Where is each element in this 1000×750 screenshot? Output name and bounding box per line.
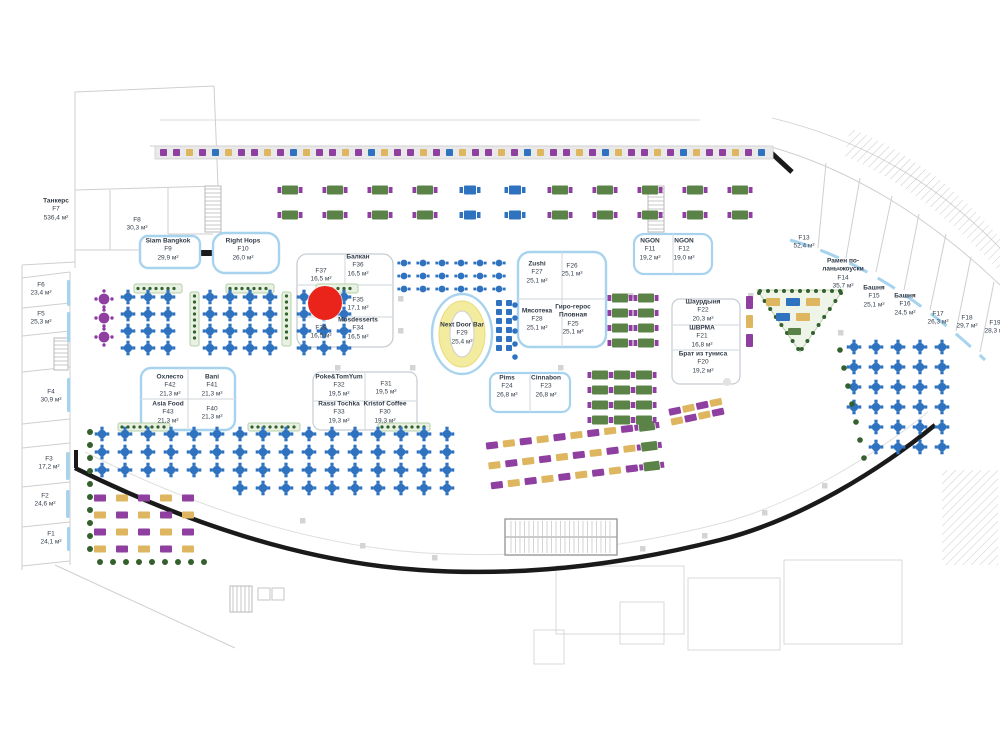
decor-shape (446, 275, 449, 278)
decor-shape (465, 288, 468, 291)
decor-shape (187, 450, 190, 453)
decor-shape (427, 288, 430, 291)
decor-shape (451, 486, 454, 489)
decor-shape (569, 187, 573, 193)
decor-shape (215, 456, 218, 459)
decor-shape (193, 324, 196, 327)
decor-shape (440, 450, 443, 453)
decor-shape (684, 413, 697, 422)
stall-label-F15[interactable]: БашняF1525,1 м² (863, 285, 884, 310)
decor-shape (198, 450, 201, 453)
stall-label-F7[interactable]: ТанкерсF7536,4 м² (43, 198, 69, 223)
stall-label-F37[interactable]: F3716,5 м² (310, 268, 331, 285)
stall-name: Next Door Bar (440, 322, 484, 330)
decor-shape (749, 187, 753, 193)
location-marker[interactable] (308, 286, 342, 320)
stall-label-F16[interactable]: БашняF1624,5 м² (894, 293, 915, 318)
decor-shape (116, 495, 128, 502)
decor-shape (507, 479, 520, 487)
stall-label-F35[interactable]: F3517,1 м² (347, 297, 368, 314)
stall-label-F13[interactable]: F1352,4 м² (793, 235, 814, 252)
decor-shape (348, 346, 351, 349)
decor-shape (443, 430, 452, 439)
decor-shape (548, 212, 552, 218)
decor-shape (292, 425, 295, 428)
decor-shape (433, 149, 440, 156)
decor-shape (852, 340, 855, 343)
decor-shape (162, 425, 165, 428)
decor-shape (87, 468, 93, 474)
decor-shape (99, 332, 110, 343)
decor-shape (537, 149, 544, 156)
decor-shape (588, 417, 592, 423)
decor-shape (439, 273, 446, 280)
decor-shape (399, 481, 402, 484)
decor-shape (279, 486, 282, 489)
decor-shape (757, 291, 761, 295)
stall-label-F40[interactable]: F4021,3 м² (201, 406, 222, 423)
decor-shape (918, 400, 921, 403)
decor-shape (420, 260, 427, 267)
decor-shape (254, 312, 257, 315)
decor-shape (509, 186, 521, 195)
decor-shape (129, 468, 132, 471)
decor-shape (874, 411, 877, 414)
decor-shape (55, 565, 235, 648)
stall-code: F7 (43, 206, 69, 214)
decor-shape (351, 466, 360, 475)
stall-label-F9[interactable]: Siam BangkokF929,9 м² (146, 238, 191, 263)
decor-shape (693, 149, 700, 156)
stairs-icon (230, 586, 252, 612)
decor-shape (505, 459, 518, 467)
stall-label-F18[interactable]: F1829,7 м² (956, 315, 977, 332)
decor-shape (401, 260, 408, 267)
decor-shape (399, 456, 402, 459)
decor-shape (282, 484, 291, 493)
decor-shape (146, 290, 149, 293)
decor-shape (102, 308, 105, 311)
decor-shape (258, 588, 270, 600)
decor-shape (446, 288, 449, 291)
decor-shape (940, 340, 943, 343)
decor-shape (477, 273, 484, 280)
decor-shape (320, 344, 329, 353)
stall-area: 35,7 м² (822, 282, 864, 290)
decor-shape (728, 187, 732, 193)
decor-shape (359, 450, 362, 453)
stall-code: F39 (310, 325, 331, 333)
decor-shape (161, 312, 164, 315)
decor-shape (236, 484, 245, 493)
stall-label-F42[interactable]: ОхлестоF4221,3 м² (157, 374, 184, 399)
stall-name: Zushi (526, 261, 547, 269)
decor-shape (847, 365, 850, 368)
decor-shape (210, 468, 213, 471)
decor-shape (290, 468, 293, 471)
decor-shape (336, 287, 339, 290)
decor-shape (282, 448, 291, 457)
decor-shape (166, 301, 169, 304)
stall-label-F32[interactable]: Poke&TomYumF3219,5 м² (315, 374, 362, 399)
decor-shape (268, 341, 271, 344)
decor-shape (118, 432, 121, 435)
decor-shape (243, 346, 246, 349)
decor-shape (336, 432, 339, 435)
decor-shape (342, 149, 349, 156)
decor-shape (704, 187, 708, 193)
decor-shape (67, 312, 71, 342)
stall-label-F12[interactable]: NGONF1219,0 м² (673, 238, 694, 263)
decor-shape (154, 287, 157, 290)
decor-shape (256, 425, 259, 428)
decor-shape (924, 445, 927, 448)
stall-label-F22[interactable]: ШаурдыняF2220,3 м² (686, 299, 721, 324)
decor-shape (940, 391, 943, 394)
decor-shape (233, 468, 236, 471)
stall-label-F33[interactable]: Rassi TochkaF3319,3 м² (318, 401, 359, 426)
decor-shape (132, 312, 135, 315)
decor-shape (266, 344, 275, 353)
decor-shape (282, 211, 298, 220)
stall-label-F21[interactable]: ШВРМАF2116,8 м² (689, 325, 715, 350)
decor-shape (597, 186, 613, 195)
wall-lines (75, 148, 935, 572)
decor-shape (116, 512, 128, 519)
decor-shape (608, 340, 612, 346)
stall-label-F27[interactable]: ZushiF2725,1 м² (526, 261, 547, 286)
stall-code: F16 (894, 301, 915, 309)
decor-shape (946, 425, 949, 428)
decor-shape (698, 410, 711, 419)
decor-shape (588, 372, 592, 378)
decor-shape (208, 301, 211, 304)
decor-shape (938, 403, 947, 412)
stall-label-F1[interactable]: F124,1 м² (40, 531, 61, 548)
decor-shape (667, 149, 674, 156)
decor-shape (141, 295, 144, 298)
decor-shape (623, 444, 636, 452)
decor-shape (445, 427, 448, 430)
decor-shape (305, 466, 314, 475)
decor-shape (876, 196, 892, 272)
decor-shape (522, 212, 526, 218)
decor-shape (473, 275, 476, 278)
decor-shape (451, 450, 454, 453)
decor-shape (512, 354, 518, 360)
decor-shape (588, 402, 592, 408)
decor-shape (313, 468, 316, 471)
decor-shape (124, 344, 133, 353)
decor-shape (918, 371, 921, 374)
stall-code: F10 (226, 246, 261, 254)
stall-label-F20[interactable]: Брат из тунисаF2019,2 м² (679, 351, 727, 376)
decor-shape (916, 363, 925, 372)
decor-shape (641, 149, 648, 156)
decor-shape (422, 445, 425, 448)
decor-shape (102, 289, 105, 292)
stall-area: 25,1 м² (555, 328, 590, 336)
decor-shape (353, 427, 356, 430)
decor-shape (121, 295, 124, 298)
decor-shape (299, 212, 303, 218)
decor-shape (592, 401, 608, 410)
stall-label-F39[interactable]: F3916,5 м² (310, 325, 331, 342)
stall-label-F8[interactable]: F830,3 м² (126, 217, 147, 234)
decor-shape (473, 288, 476, 291)
decor-shape (166, 352, 169, 355)
decor-shape (496, 300, 502, 306)
decor-shape (256, 450, 259, 453)
decor-shape (67, 280, 71, 306)
stall-name: Cinnabon (531, 375, 561, 383)
decor-shape (300, 344, 309, 353)
decor-shape (592, 386, 608, 395)
decor-shape (918, 411, 921, 414)
decor-shape (852, 351, 855, 354)
stall-label-F43[interactable]: Asia FoodF4321,3 м² (152, 401, 183, 426)
stall-label-F24[interactable]: PimsF2426,8 м² (496, 375, 517, 400)
decor-shape (284, 456, 287, 459)
decor-shape (284, 492, 287, 495)
stall-label-F3[interactable]: F317,2 м² (38, 456, 59, 473)
stall-area: 25,1 м² (526, 277, 547, 285)
decor-shape (136, 559, 142, 565)
stall-label-F23[interactable]: CinnabonF2326,8 м² (531, 375, 561, 400)
decor-shape (762, 510, 768, 516)
stall-label-F31[interactable]: F3119,5 м² (375, 381, 396, 398)
stall-code: F25 (555, 320, 590, 328)
stall-label-F4[interactable]: F430,9 м² (40, 389, 61, 406)
decor-shape (593, 212, 597, 218)
decor-shape (203, 295, 206, 298)
decor-shape (435, 288, 438, 291)
decor-shape (680, 149, 687, 156)
decor-shape (206, 344, 215, 353)
decor-shape (259, 448, 268, 457)
decor-shape (146, 474, 149, 477)
decor-shape (766, 289, 770, 293)
stall-label-F41[interactable]: BaniF4121,3 м² (201, 374, 222, 399)
decor-shape (896, 431, 899, 434)
decor-shape (267, 432, 270, 435)
decor-shape (629, 310, 633, 316)
stall-label-F30[interactable]: Kristof CoffeeF3019,3 м² (364, 401, 407, 426)
decor-shape (169, 474, 172, 477)
stall-code: F3 (38, 456, 59, 464)
decor-shape (274, 312, 277, 315)
stall-name: Right Hops (226, 238, 261, 246)
decor-shape (228, 287, 231, 290)
decor-shape (302, 307, 305, 310)
decor-shape (940, 371, 943, 374)
decor-shape (244, 468, 247, 471)
decor-shape (422, 427, 425, 430)
decor-shape (428, 432, 431, 435)
decor-shape (940, 351, 943, 354)
decor-shape (916, 423, 925, 432)
decor-shape (857, 437, 863, 443)
decor-shape (509, 211, 521, 220)
decor-shape (439, 260, 446, 267)
decor-shape (869, 425, 872, 428)
decor-shape (124, 310, 133, 319)
stall-name: Siam Bangkok (146, 238, 191, 246)
decor-shape (445, 445, 448, 448)
decor-shape (110, 297, 113, 300)
decor-shape (417, 450, 420, 453)
decor-shape (492, 288, 495, 291)
decor-shape (918, 340, 921, 343)
stall-label-F26[interactable]: F2625,1 м² (561, 263, 582, 280)
decor-shape (282, 186, 298, 195)
decor-shape (524, 149, 531, 156)
decor-shape (87, 494, 93, 500)
decor-shape (238, 492, 241, 495)
stall-label-F6[interactable]: F623,4 м² (30, 282, 51, 299)
decor-shape (405, 432, 408, 435)
decor-shape (126, 318, 129, 321)
stall-area: 19,5 м² (315, 390, 362, 398)
decor-shape (254, 329, 257, 332)
decor-shape (160, 495, 172, 502)
decor-shape (451, 468, 454, 471)
decor-shape (558, 473, 571, 481)
stall-label-F29[interactable]: Next Door BarF2925,4 м² (440, 322, 484, 347)
stall-label-F2[interactable]: F224,6 м² (34, 493, 55, 510)
decor-shape (152, 295, 155, 298)
decor-shape (99, 313, 110, 324)
decor-shape (248, 352, 251, 355)
decor-shape (852, 391, 855, 394)
decor-shape (880, 365, 883, 368)
decor-shape (164, 327, 173, 336)
decor-shape (268, 318, 271, 321)
decor-shape (297, 329, 300, 332)
decor-shape (359, 486, 362, 489)
decor-shape (126, 352, 129, 355)
decor-shape (212, 149, 219, 156)
decor-shape (300, 310, 309, 319)
decor-shape (614, 187, 618, 193)
decor-shape (243, 295, 246, 298)
decor-shape (243, 312, 246, 315)
stall-code: F36 (346, 262, 369, 270)
decor-shape (779, 323, 783, 327)
decor-shape (381, 149, 388, 156)
stall-label-F5[interactable]: F525,3 м² (30, 311, 51, 328)
decor-shape (614, 386, 630, 395)
decor-shape (874, 371, 877, 374)
decor-shape (123, 438, 126, 441)
decor-shape (166, 324, 169, 327)
decor-shape (285, 318, 288, 321)
decor-shape (496, 345, 502, 351)
decor-shape (894, 423, 903, 432)
decor-shape (486, 441, 499, 449)
decor-shape (604, 427, 617, 435)
decor-shape (382, 486, 385, 489)
stall-label-F10[interactable]: Right HopsF1026,0 м² (226, 238, 261, 263)
decor-shape (144, 310, 153, 319)
decor-shape (845, 383, 851, 389)
decor-shape (946, 365, 949, 368)
decor-shape (149, 559, 155, 565)
stall-label-F11[interactable]: NGONF1119,2 м² (639, 238, 660, 263)
decor-shape (791, 339, 795, 343)
decor-shape (817, 323, 821, 327)
decor-shape (266, 327, 275, 336)
decor-shape (428, 468, 431, 471)
decor-shape (238, 456, 241, 459)
decor-shape (172, 295, 175, 298)
decor-shape (980, 282, 994, 352)
decor-shape (386, 425, 389, 428)
decor-shape (464, 186, 476, 195)
decor-shape (670, 416, 683, 425)
decor-shape (206, 310, 215, 319)
decor-shape (307, 438, 310, 441)
decor-shape (660, 462, 665, 468)
decor-shape (166, 341, 169, 344)
decor-shape (353, 456, 356, 459)
decor-shape (916, 443, 925, 452)
decor-shape (123, 463, 126, 466)
decor-shape (278, 187, 282, 193)
decor-shape (491, 481, 504, 489)
decor-shape (215, 438, 218, 441)
decor-shape (266, 293, 275, 302)
decor-shape (869, 405, 872, 408)
decor-shape (146, 335, 149, 338)
stall-code: F9 (146, 246, 191, 254)
decor-shape (169, 438, 172, 441)
decor-shape (399, 445, 402, 448)
stall-label-F17[interactable]: F1726,3 м² (927, 311, 948, 328)
stall-label-F25[interactable]: Гиро-геросПловнаяF2525,1 м² (555, 303, 590, 336)
decor-shape (434, 187, 438, 193)
stall-area: 19,5 м² (375, 389, 396, 397)
decor-shape (398, 328, 404, 334)
stall-label-F34[interactable]: MosdessertsF3416,5 м² (338, 317, 378, 342)
decor-shape (187, 468, 190, 471)
stall-name: Башня (894, 293, 915, 301)
decor-shape (659, 187, 663, 193)
decor-shape (766, 298, 780, 306)
decor-shape (496, 318, 502, 324)
decor-shape (192, 438, 195, 441)
decor-shape (935, 365, 938, 368)
stall-label-F36[interactable]: БалканF3616,5 м² (346, 254, 369, 279)
decor-shape (215, 427, 218, 430)
stall-label-F14[interactable]: Рамен по-ланьчжоускиF1435,7 м² (822, 257, 864, 290)
decor-shape (166, 290, 169, 293)
stall-label-F19[interactable]: F1928,3 м² (984, 320, 1000, 337)
stall-code: F35 (347, 297, 368, 305)
decor-shape (655, 295, 659, 301)
decor-shape (896, 440, 899, 443)
decor-shape (313, 432, 316, 435)
decor-shape (628, 149, 635, 156)
decor-shape (246, 293, 255, 302)
stall-label-F28[interactable]: МясотекаF2825,1 м² (522, 308, 552, 333)
decor-shape (360, 543, 366, 549)
decor-shape (344, 187, 348, 193)
decor-shape (465, 262, 468, 265)
decor-shape (98, 466, 107, 475)
decor-shape (284, 427, 287, 430)
decor-shape (160, 149, 167, 156)
